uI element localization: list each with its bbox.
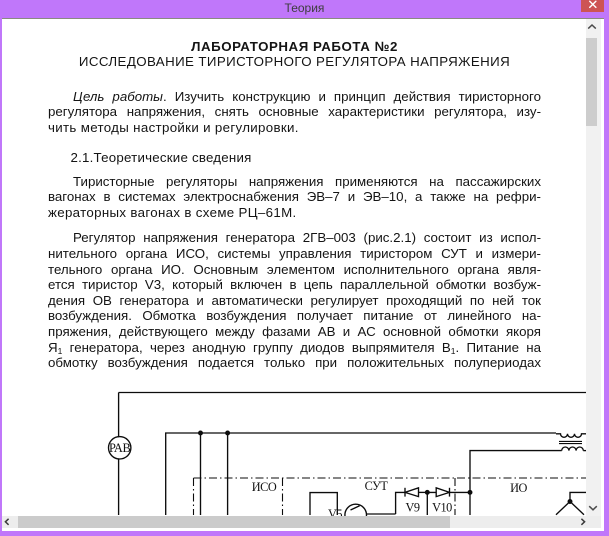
svg-text:СУТ: СУТ [365,479,389,493]
svg-text:ИО: ИО [510,481,527,495]
svg-text:РАВ: РАВ [109,441,130,455]
svg-text:V10: V10 [432,501,452,515]
svg-text:ИСО: ИСО [252,480,277,494]
svg-text:V9: V9 [405,501,419,515]
